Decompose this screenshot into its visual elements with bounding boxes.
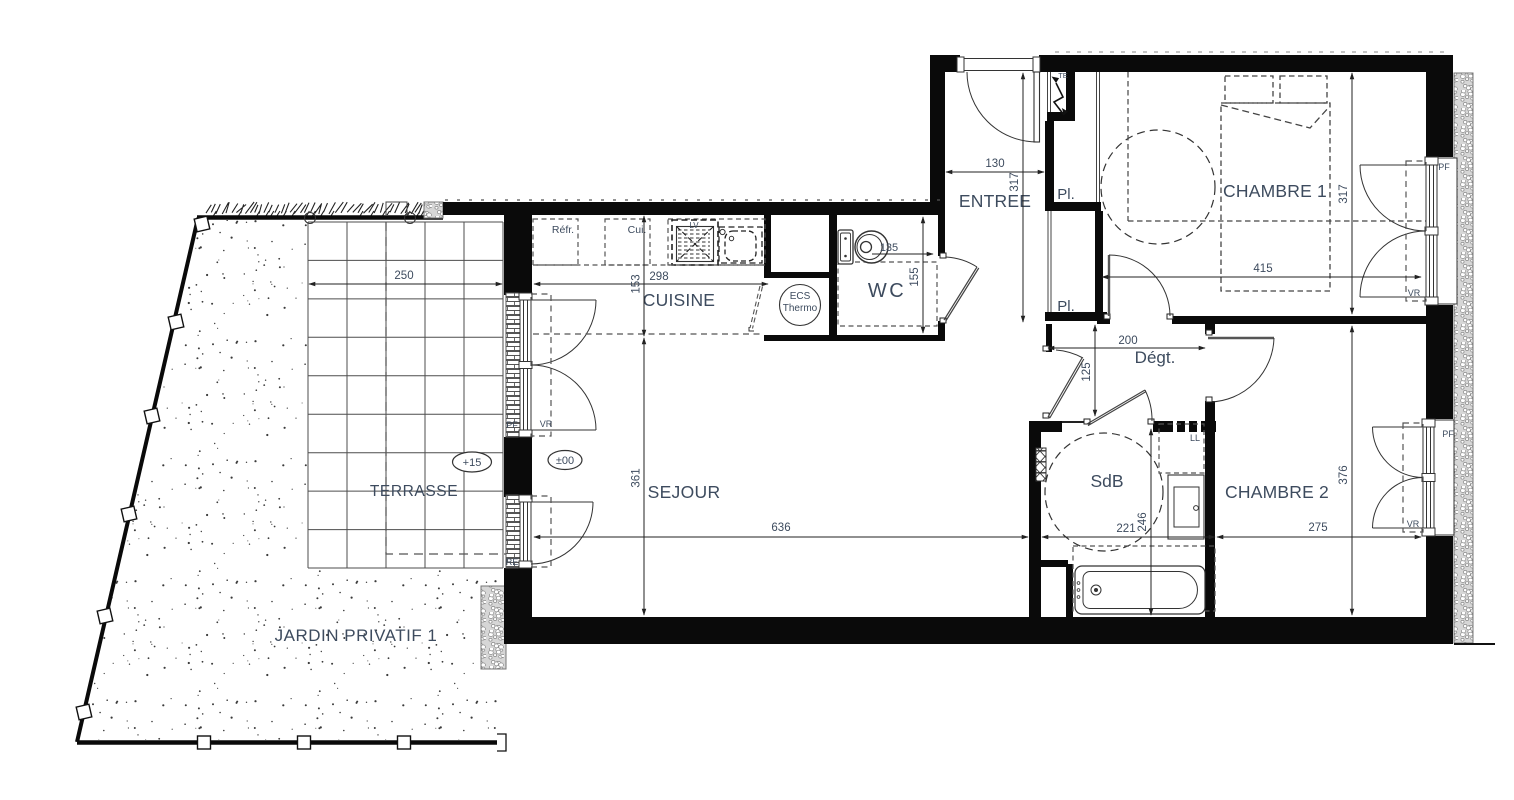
svg-text:PF: PF	[1438, 162, 1450, 172]
svg-text:SdB: SdB	[1090, 471, 1123, 491]
svg-text:298: 298	[649, 271, 668, 283]
svg-text:125: 125	[1081, 362, 1093, 381]
svg-text:RE: RE	[506, 557, 519, 567]
svg-text:CHAMBRE 2: CHAMBRE 2	[1225, 482, 1329, 502]
svg-text:415: 415	[1253, 263, 1272, 275]
svg-text:250: 250	[394, 270, 413, 282]
svg-text:Pl.: Pl.	[1057, 186, 1075, 203]
svg-text:200: 200	[1118, 335, 1137, 347]
svg-text:376: 376	[1338, 465, 1350, 484]
svg-text:PF: PF	[1442, 429, 1454, 439]
svg-text:ENTREE: ENTREE	[959, 191, 1031, 211]
svg-text:Thermo: Thermo	[783, 303, 818, 314]
svg-text:±00: ±00	[556, 455, 574, 467]
svg-text:221: 221	[1116, 523, 1135, 535]
svg-text:246: 246	[1137, 512, 1149, 531]
svg-text:TE: TE	[1058, 71, 1068, 80]
svg-text:CHAMBRE 1: CHAMBRE 1	[1223, 181, 1327, 201]
svg-text:Réfr.: Réfr.	[552, 224, 574, 236]
svg-text:317: 317	[1338, 184, 1350, 203]
svg-text:ECS: ECS	[790, 291, 811, 302]
svg-text:LL: LL	[1190, 433, 1200, 443]
svg-text:CUISINE: CUISINE	[643, 290, 715, 310]
svg-text:JARDIN PRIVATIF 1: JARDIN PRIVATIF 1	[275, 626, 438, 645]
svg-text:VR: VR	[1408, 288, 1421, 298]
svg-text:VR: VR	[540, 419, 553, 429]
svg-text:275: 275	[1308, 522, 1327, 534]
svg-text:VR: VR	[1407, 519, 1420, 529]
svg-text:WC: WC	[868, 280, 906, 302]
svg-text:+15: +15	[463, 457, 482, 469]
svg-text:317: 317	[1009, 172, 1021, 191]
svg-text:TERRASSE: TERRASSE	[370, 483, 458, 500]
svg-text:Pl.: Pl.	[1057, 298, 1075, 315]
svg-text:636: 636	[771, 522, 790, 534]
svg-text:SEJOUR: SEJOUR	[648, 482, 721, 502]
svg-text:135: 135	[880, 242, 898, 254]
svg-text:Dégt.: Dégt.	[1135, 348, 1176, 367]
svg-text:155: 155	[909, 267, 921, 286]
svg-text:361: 361	[631, 468, 643, 487]
svg-text:153: 153	[631, 274, 643, 293]
svg-text:PF: PF	[506, 420, 518, 430]
svg-text:130: 130	[985, 158, 1004, 170]
svg-text:LV: LV	[689, 221, 699, 230]
